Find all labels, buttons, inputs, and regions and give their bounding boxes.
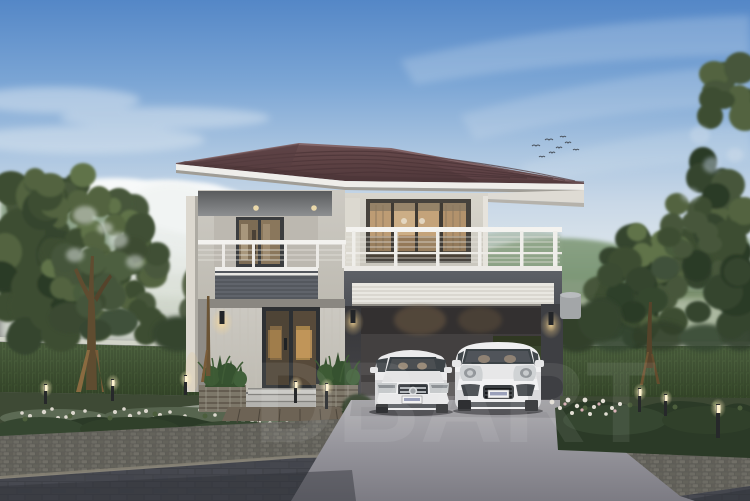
svg-text:DBART: DBART	[254, 339, 656, 467]
